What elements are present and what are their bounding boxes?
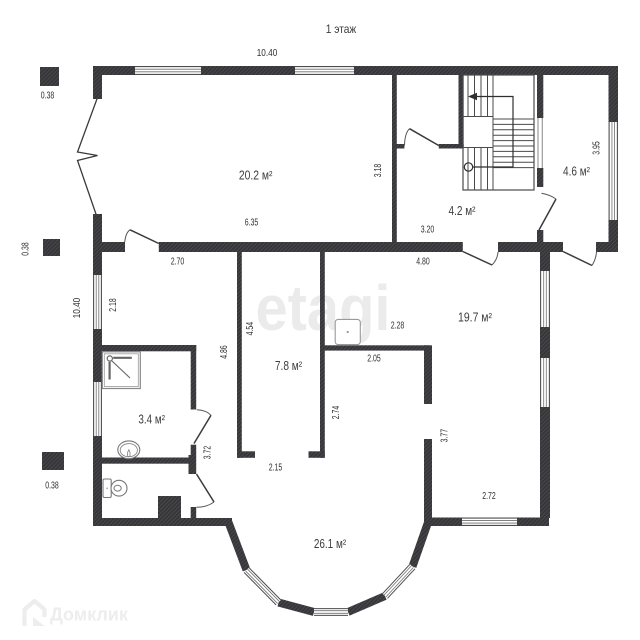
svg-text:2.15: 2.15 xyxy=(269,463,283,474)
svg-text:26.1 м²: 26.1 м² xyxy=(314,536,347,551)
svg-text:3.77: 3.77 xyxy=(440,429,451,443)
svg-text:4.2 м²: 4.2 м² xyxy=(449,203,477,218)
svg-text:3.95: 3.95 xyxy=(592,141,603,155)
svg-text:20.2 м²: 20.2 м² xyxy=(239,168,273,183)
svg-text:10.40: 10.40 xyxy=(72,297,83,318)
svg-text:2.05: 2.05 xyxy=(367,354,381,365)
svg-text:3.18: 3.18 xyxy=(373,163,384,177)
svg-text:2.72: 2.72 xyxy=(482,491,496,502)
svg-text:0.38: 0.38 xyxy=(41,91,55,102)
svg-text:4.80: 4.80 xyxy=(416,257,430,268)
svg-text:3.72: 3.72 xyxy=(203,445,214,459)
svg-text:7.8 м²: 7.8 м² xyxy=(275,358,303,373)
svg-text:4.6 м²: 4.6 м² xyxy=(563,164,591,179)
svg-text:10.40: 10.40 xyxy=(257,48,278,59)
svg-text:4.54: 4.54 xyxy=(245,322,256,336)
svg-text:19.7 м²: 19.7 м² xyxy=(458,310,493,325)
svg-text:0.38: 0.38 xyxy=(45,481,59,492)
svg-text:2.70: 2.70 xyxy=(171,256,185,267)
svg-text:2.28: 2.28 xyxy=(391,321,405,332)
svg-text:3.20: 3.20 xyxy=(421,225,435,236)
svg-text:2.18: 2.18 xyxy=(108,298,119,312)
svg-text:0.38: 0.38 xyxy=(21,242,32,256)
svg-text:Домклик: Домклик xyxy=(50,605,129,625)
svg-text:4.86: 4.86 xyxy=(219,345,230,359)
svg-text:1 этаж: 1 этаж xyxy=(326,22,357,36)
svg-text:2.74: 2.74 xyxy=(331,405,342,419)
svg-text:3.4 м²: 3.4 м² xyxy=(138,411,165,426)
svg-text:6.35: 6.35 xyxy=(245,218,259,229)
